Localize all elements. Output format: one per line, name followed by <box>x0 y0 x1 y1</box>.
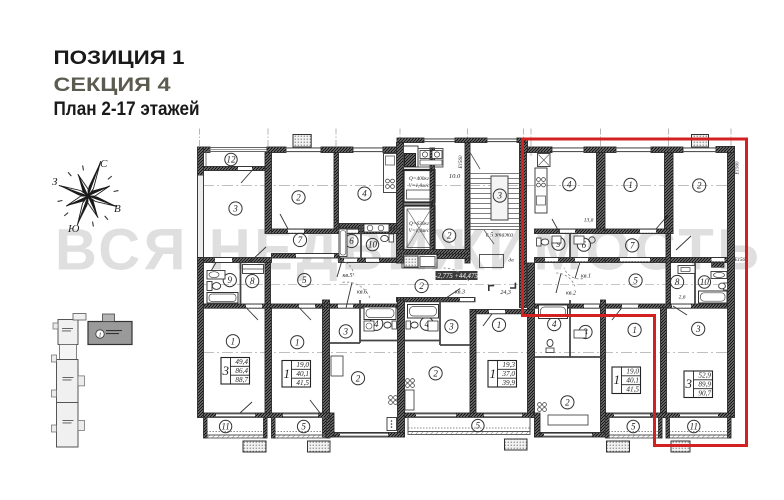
svg-text:ПОЗИЦИЯ 1: ПОЗИЦИЯ 1 <box>54 47 185 69</box>
svg-text:2: 2 <box>447 231 452 241</box>
svg-text:86,4: 86,4 <box>235 367 248 375</box>
svg-text:3: 3 <box>695 324 701 334</box>
svg-text:1: 1 <box>497 320 502 330</box>
svg-text:39,9: 39,9 <box>501 379 515 387</box>
svg-text:1: 1 <box>614 372 621 387</box>
svg-text:90,7: 90,7 <box>698 389 711 397</box>
svg-text:3: 3 <box>232 204 238 214</box>
svg-text:кв.3: кв.3 <box>455 289 465 295</box>
svg-text:13,6: 13,6 <box>584 218 594 224</box>
svg-text:З: З <box>52 176 58 188</box>
svg-text:4: 4 <box>374 319 379 329</box>
svg-text:2,6: 2,6 <box>679 295 686 301</box>
svg-text:V=1,0м/с: V=1,0м/с <box>409 228 430 234</box>
svg-text:3: 3 <box>685 376 693 391</box>
svg-text:41,5: 41,5 <box>626 385 639 393</box>
svg-text:40,1: 40,1 <box>626 377 639 385</box>
svg-text:-2,775 +44,475: -2,775 +44,475 <box>435 273 478 280</box>
svg-text:1: 1 <box>628 180 633 190</box>
svg-text:План 2-17 этажей: План 2-17 этажей <box>54 98 200 120</box>
svg-text:4: 4 <box>567 179 572 189</box>
svg-text:12: 12 <box>227 155 237 165</box>
svg-text:СЕКЦИЯ 4: СЕКЦИЯ 4 <box>54 74 171 96</box>
svg-text:кв.5: кв.5 <box>343 273 353 279</box>
svg-text:19,0: 19,0 <box>296 361 309 369</box>
svg-text:11: 11 <box>690 422 698 432</box>
svg-text:1: 1 <box>632 325 637 335</box>
svg-text:4: 4 <box>362 189 367 199</box>
svg-text:кв.6: кв.6 <box>357 290 367 296</box>
svg-text:10: 10 <box>368 240 378 250</box>
svg-text:3: 3 <box>448 322 454 332</box>
svg-text:11: 11 <box>221 422 229 432</box>
svg-text:V=1,0м/с: V=1,0м/с <box>409 183 430 189</box>
svg-text:дв: дв <box>508 257 514 264</box>
svg-text:Ю: Ю <box>67 223 80 235</box>
svg-text:5: 5 <box>301 422 306 432</box>
svg-text:3: 3 <box>497 191 503 201</box>
svg-text:19,3: 19,3 <box>502 361 515 369</box>
svg-text:24,3: 24,3 <box>500 289 511 296</box>
svg-text:1: 1 <box>98 332 101 339</box>
svg-text:2: 2 <box>296 193 301 203</box>
svg-text:С: С <box>100 158 108 170</box>
svg-text:3: 3 <box>343 327 349 337</box>
svg-text:8: 8 <box>250 276 255 286</box>
svg-text:37,0: 37,0 <box>501 370 515 378</box>
svg-text:2: 2 <box>356 373 361 383</box>
svg-text:89,9: 89,9 <box>698 381 711 389</box>
svg-text:5: 5 <box>476 421 481 431</box>
svg-text:В: В <box>114 203 121 215</box>
svg-text:5: 5 <box>631 422 636 432</box>
svg-text:49,4: 49,4 <box>235 358 248 366</box>
svg-text:Q=400кг: Q=400кг <box>409 176 429 182</box>
svg-text:Q=630кг: Q=630кг <box>409 221 429 227</box>
svg-text:4: 4 <box>552 319 557 329</box>
svg-text:10.0: 10.0 <box>449 173 461 180</box>
svg-text:кв.2: кв.2 <box>566 291 576 297</box>
svg-text:9: 9 <box>228 275 233 285</box>
svg-text:7: 7 <box>630 241 635 251</box>
svg-text:3: 3 <box>222 363 230 378</box>
svg-text:40,1: 40,1 <box>296 370 309 378</box>
svg-text:1: 1 <box>490 366 497 381</box>
svg-text:с 5 этажа: с 5 этажа <box>486 233 513 239</box>
svg-text:7: 7 <box>298 235 303 245</box>
svg-text:2: 2 <box>433 368 438 378</box>
svg-text:2: 2 <box>419 281 424 291</box>
svg-text:10: 10 <box>700 277 710 287</box>
svg-text:1: 1 <box>295 337 300 347</box>
svg-text:41,5: 41,5 <box>296 379 309 387</box>
svg-text:2: 2 <box>565 397 570 407</box>
svg-text:2: 2 <box>697 181 702 191</box>
svg-text:88,7: 88,7 <box>235 376 248 384</box>
svg-text:1: 1 <box>231 336 236 346</box>
svg-text:Е1560: Е1560 <box>459 155 464 170</box>
svg-text:Е1560: Е1560 <box>736 161 741 176</box>
svg-text:5: 5 <box>302 275 307 285</box>
svg-text:6: 6 <box>349 236 354 246</box>
svg-text:1: 1 <box>284 366 291 381</box>
svg-text:8: 8 <box>675 277 680 287</box>
svg-text:19,0: 19,0 <box>626 368 639 376</box>
svg-text:52,9: 52,9 <box>698 372 711 380</box>
svg-text:5: 5 <box>633 276 638 286</box>
